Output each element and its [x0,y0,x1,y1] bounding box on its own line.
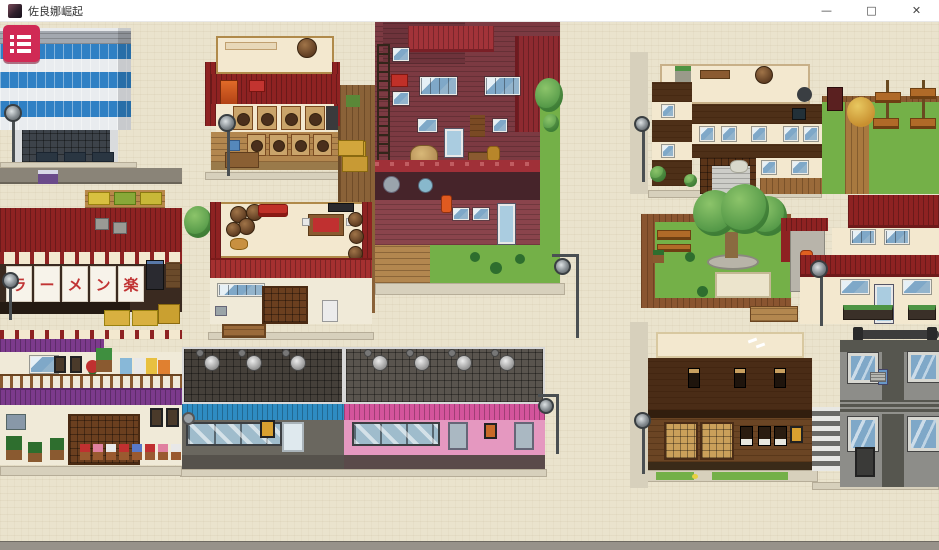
menu-list-icon [10,35,40,39]
window [662,105,674,117]
lamp-head [634,116,650,132]
counter [225,42,277,50]
window [851,230,875,244]
lamp-arm [538,394,556,397]
wooden-crate [132,310,158,326]
shelf [470,115,485,137]
small-window [758,426,771,446]
sake-barrel [237,113,250,126]
wooden-crate [342,156,368,172]
window [473,208,489,220]
round-table [383,176,400,193]
lamp-head [634,412,651,429]
plant [697,286,708,297]
planter-box [908,305,936,320]
large-window [908,417,939,451]
roof-vent [95,218,109,230]
public-park [641,214,791,314]
door [448,422,468,450]
roof-pipe [238,349,246,357]
sake-barrel [261,113,274,126]
produce-crate [140,192,162,205]
large-window [908,352,939,382]
dark-band [692,144,822,158]
street-lamp [218,114,236,132]
vent-fan [456,355,472,371]
upper-wall [648,358,812,410]
rooftop-box [38,170,58,184]
potted-plant [653,250,664,263]
big-tree-foliage [721,184,769,234]
small-window [774,426,787,446]
maximize-button[interactable]: □ [849,0,894,21]
noren-character: ー [39,274,54,295]
blue-door [445,129,463,157]
flowers [692,474,698,479]
art-board [150,408,163,427]
lamp-head [554,258,571,275]
rooftop-garden [822,74,939,194]
game-window: 佐良娜崛起 — □ ✕ [0,0,939,550]
produce-crate [114,192,136,205]
sake-barrel [251,140,263,152]
window [393,92,409,105]
tiled-roof [0,208,182,252]
ac-unit [870,372,886,382]
noren-curtain: メ [62,266,88,302]
wooden-table [225,152,259,168]
barrel-display [291,134,310,156]
sake-barrel [285,113,298,126]
plant [685,252,695,262]
noren-character: 楽 [123,274,138,295]
window [493,119,507,132]
window-controls: — □ ✕ [804,0,939,21]
lattice-door [68,414,140,465]
potted-plant [6,436,22,460]
orange-lantern [441,195,452,213]
metal-roof [408,26,494,52]
window [485,77,520,95]
building-shadow [118,28,131,130]
small-window [774,368,786,388]
planter [64,152,86,162]
upper-roof [0,339,104,352]
title-bar: 佐良娜崛起 — □ ✕ [0,0,939,22]
bench [222,324,266,338]
corner-lamp [182,412,195,425]
menu-button[interactable] [3,25,40,62]
plant [490,262,502,274]
roof-pipe [491,349,499,357]
barrel-display [233,106,253,130]
vent-fan [414,355,430,371]
roof-pipe [448,349,456,357]
potted-plant [50,438,64,460]
sake-shop [205,34,367,184]
lower-brick-wall [375,200,560,245]
vending-machine [827,87,843,111]
sake-barrel [273,140,285,152]
red-sofa [258,204,288,217]
eave-band [0,330,182,339]
grass-strip [656,472,694,480]
pink-awning [344,404,545,420]
pillar [14,130,22,162]
roof-pipe [406,349,414,357]
base-band [182,455,344,469]
laundry [120,358,132,374]
planter [36,152,58,162]
window [700,127,714,141]
balcony-railing [0,374,182,388]
flower-pot [171,444,181,460]
window [841,280,869,294]
vent-box [792,108,806,120]
box [215,306,227,316]
window [393,48,409,61]
window [662,145,674,157]
street-lower-band [0,541,939,550]
wooden-crate [338,140,364,156]
izakaya [648,330,812,482]
vent-fan [290,355,306,371]
sandbox [715,272,771,298]
tv-screen [328,203,354,212]
potted-plant [28,442,42,462]
barrel-display [305,106,325,130]
street-lamp [552,252,582,340]
flat-roof [344,347,545,404]
roof-vent [113,222,127,234]
large-window [848,417,878,451]
bench [910,118,936,129]
planter [92,152,114,162]
rooftop [656,332,804,358]
bush [543,114,559,132]
barrel [348,212,363,227]
basket [230,238,248,250]
vent-fan [246,355,262,371]
wooden-crate [104,310,130,326]
lamp-pole [556,394,559,454]
noren-character: ン [95,274,110,295]
flower-pot [132,444,142,460]
store-blue-awning [182,347,344,469]
flower-pot [106,444,116,460]
sidewalk [375,283,565,295]
vent-fan [372,355,388,371]
eave-dashes [375,162,560,166]
app-icon [8,4,22,18]
bench [910,88,936,99]
window [885,230,909,244]
glass-door [282,422,304,452]
storefront-glass [352,422,440,446]
window-band [692,124,822,144]
barrel-display [313,134,332,156]
lattice-screen [700,422,734,460]
noren-curtain: 楽 [118,266,144,302]
lamp-arm [552,254,576,257]
street-lamp [810,258,836,328]
laundry [146,358,157,374]
window [752,127,766,141]
vending-machine [146,260,164,290]
street-lamp [634,412,660,474]
small-window [740,426,753,446]
plant [515,254,525,264]
window [418,119,437,132]
divider-beam [648,410,812,418]
wooden-deck [375,245,430,283]
potted-tree [96,348,112,372]
window-title: 佐良娜崛起 [28,3,83,19]
window [784,127,798,141]
lattice-screen [664,422,698,460]
sake-barrel [297,38,317,58]
chair [302,218,310,226]
modern-gray-building [812,325,939,487]
roof-band [210,258,372,278]
window [792,161,808,174]
lower-band [756,158,822,178]
brown-inn-building [648,62,822,194]
flower-pot [93,444,103,460]
menu-sign [322,300,338,322]
family-restaurant [210,200,372,340]
pot [797,87,812,102]
window [903,280,931,294]
barrel-display [269,134,288,156]
lower-roof [0,388,182,405]
game-viewport[interactable]: ラ ー メ ン 楽 [0,22,939,550]
lamp-pole [642,124,645,182]
street-lamp [634,116,660,184]
window [420,77,457,95]
street-lamp [2,272,19,289]
purple-roof-rowhouse [0,330,182,480]
lamp-pole [576,254,579,338]
dining-table [308,214,344,236]
noren-curtain: ン [90,266,116,302]
side-stairs [812,407,840,471]
minimize-button[interactable]: — [804,0,849,21]
tree [184,206,212,238]
vent-fan [499,355,515,371]
window [762,161,776,174]
sake-barrel [309,113,322,126]
plant [470,252,480,262]
lantern [790,426,803,443]
cabinet [326,106,338,130]
door [514,422,534,450]
window [453,208,469,220]
roof-sign [249,80,265,92]
annex-roof [786,218,828,231]
barrel-display [257,106,277,130]
blue-door [498,204,515,244]
window [218,284,264,296]
pipe-joint [927,327,937,341]
inn-main [692,104,822,194]
base-band [648,462,812,470]
laundry [158,360,170,374]
tree [535,78,563,112]
flower-pot [145,444,155,460]
red-roof-restaurant [781,192,939,324]
bush [684,174,697,187]
noren-curtain: ー [34,266,60,302]
red-brick-building [375,22,565,312]
planter-box [843,305,893,320]
bench [875,92,901,103]
street-lamp [4,104,22,122]
basin [6,414,26,430]
wooden-crate [158,304,180,324]
barrel-display [281,106,301,130]
vent-fan [204,355,220,371]
upper-roof [848,195,939,228]
lantern [484,423,497,439]
tablecloth [313,218,339,232]
bench [657,230,691,240]
street-lamp [538,390,568,456]
flower-pot [80,444,90,460]
lamp-head [810,260,828,278]
fire-escape-ladder [377,44,390,172]
art-board [54,356,66,373]
roof-edge [362,202,372,260]
flower-pot [158,444,168,460]
laundry [134,358,145,374]
lamp-head [538,398,554,414]
art-board [70,356,82,373]
rock [730,160,748,173]
roof-pipe [364,349,372,357]
pipe-joint [853,327,863,341]
sake-barrel [317,140,329,152]
roof-ledge [0,168,182,184]
small-window [734,368,746,388]
sidewalk [180,469,547,477]
window [722,127,736,141]
noren-character: メ [67,274,82,295]
barrel [755,66,773,84]
small-window [688,368,700,388]
produce-crate [88,192,110,205]
roof-pipe [282,349,290,357]
roof-edge [210,202,221,260]
yellow-tree [847,97,875,127]
art-board [166,408,179,427]
shelf [166,262,180,288]
base-band [344,455,545,469]
tree-trunk [725,232,738,258]
blue-awning [182,404,344,420]
barrel [226,222,241,237]
grass-strip [712,472,788,480]
lattice-door [262,286,308,324]
round-table [418,178,433,193]
store-pink-awning [344,347,545,469]
flower-pot [119,444,129,460]
bench [873,118,899,129]
close-button[interactable]: ✕ [894,0,939,21]
red-sign [391,74,408,87]
upper-room-interior [375,172,560,200]
window [804,127,818,141]
dark-door [855,447,875,477]
sake-barrel [295,140,307,152]
floor-band [840,400,939,414]
bench [700,70,730,79]
ramen-shop: ラ ー メ ン 楽 [0,168,182,330]
roof-pipe [196,349,204,357]
barrel [349,229,364,244]
lantern [260,420,275,438]
